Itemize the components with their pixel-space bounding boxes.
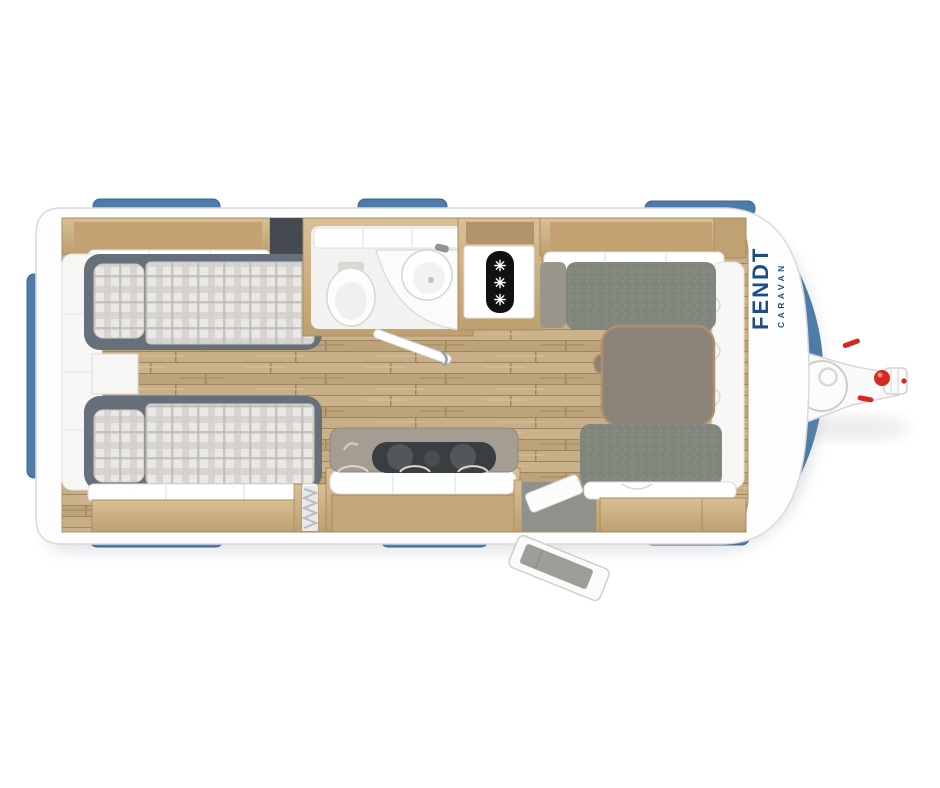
fridge-unit: ✳ ✳ ✳ (458, 218, 542, 330)
hob-burner-center (424, 451, 440, 467)
single-bed-top (84, 254, 322, 350)
floorplan-canvas: ✳ ✳ ✳ (0, 0, 940, 788)
bench-seat-top (566, 262, 716, 330)
front-base-cabinet (600, 498, 746, 532)
dinette-table (602, 326, 714, 426)
bed-bench-front (88, 484, 320, 502)
kitchen-drawer-band (332, 495, 516, 532)
heater-panel-right (318, 484, 326, 532)
caravan-floorplan: ✳ ✳ ✳ (0, 0, 940, 788)
kitchen-door-row (330, 470, 516, 494)
bench-front-bottom (584, 482, 736, 499)
heater-panel-left (294, 484, 302, 532)
snowflake-icon-2: ✳ (494, 275, 507, 292)
snowflake-icon-1: ✳ (494, 258, 507, 275)
hitch-red-knob (874, 370, 890, 386)
duvet-bottom (146, 404, 314, 484)
snowflake-icon-3: ✳ (494, 292, 507, 309)
bed-drawer-band (92, 500, 320, 532)
hitch-knob-highlight (878, 373, 883, 378)
overhead-shelf-front-inner (550, 222, 712, 250)
sink-drain (428, 277, 434, 283)
brand-logo-fendt: FENDT (748, 247, 773, 330)
entry-frame-left (514, 480, 522, 532)
hitch-red-lever-top (842, 338, 861, 349)
bench-backrest-top (540, 262, 566, 328)
heater (294, 484, 326, 532)
duvet-top (146, 262, 314, 344)
pillow-bottom (94, 410, 144, 482)
overhead-shelf-top-inner (74, 222, 262, 249)
hitch-red-tip (901, 378, 906, 383)
brand-logo-caravan: CARAVAN (776, 262, 786, 328)
single-bed-bottom (84, 396, 322, 490)
bench-seat-bottom (580, 424, 722, 486)
fridge-top-shelf (466, 222, 534, 244)
nightstand (92, 354, 138, 394)
pillow-top (94, 264, 144, 338)
toilet-seat (335, 282, 367, 320)
